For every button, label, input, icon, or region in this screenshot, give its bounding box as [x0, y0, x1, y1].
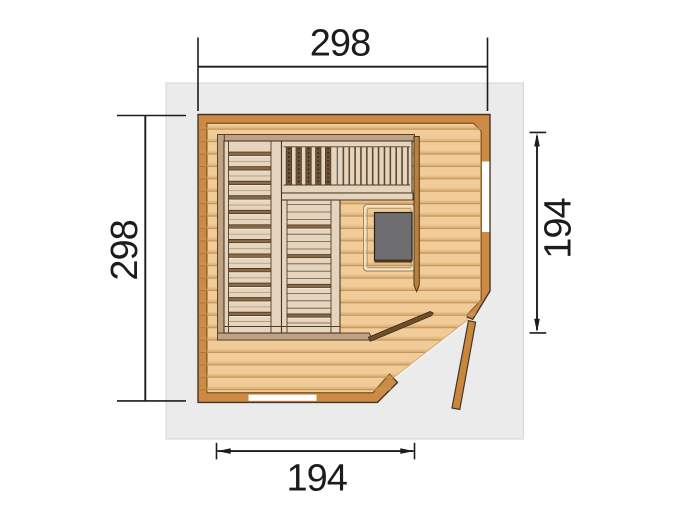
svg-text:298: 298	[310, 22, 370, 64]
svg-text:194: 194	[537, 198, 579, 259]
svg-text:194: 194	[286, 457, 347, 499]
svg-text:298: 298	[104, 220, 146, 280]
